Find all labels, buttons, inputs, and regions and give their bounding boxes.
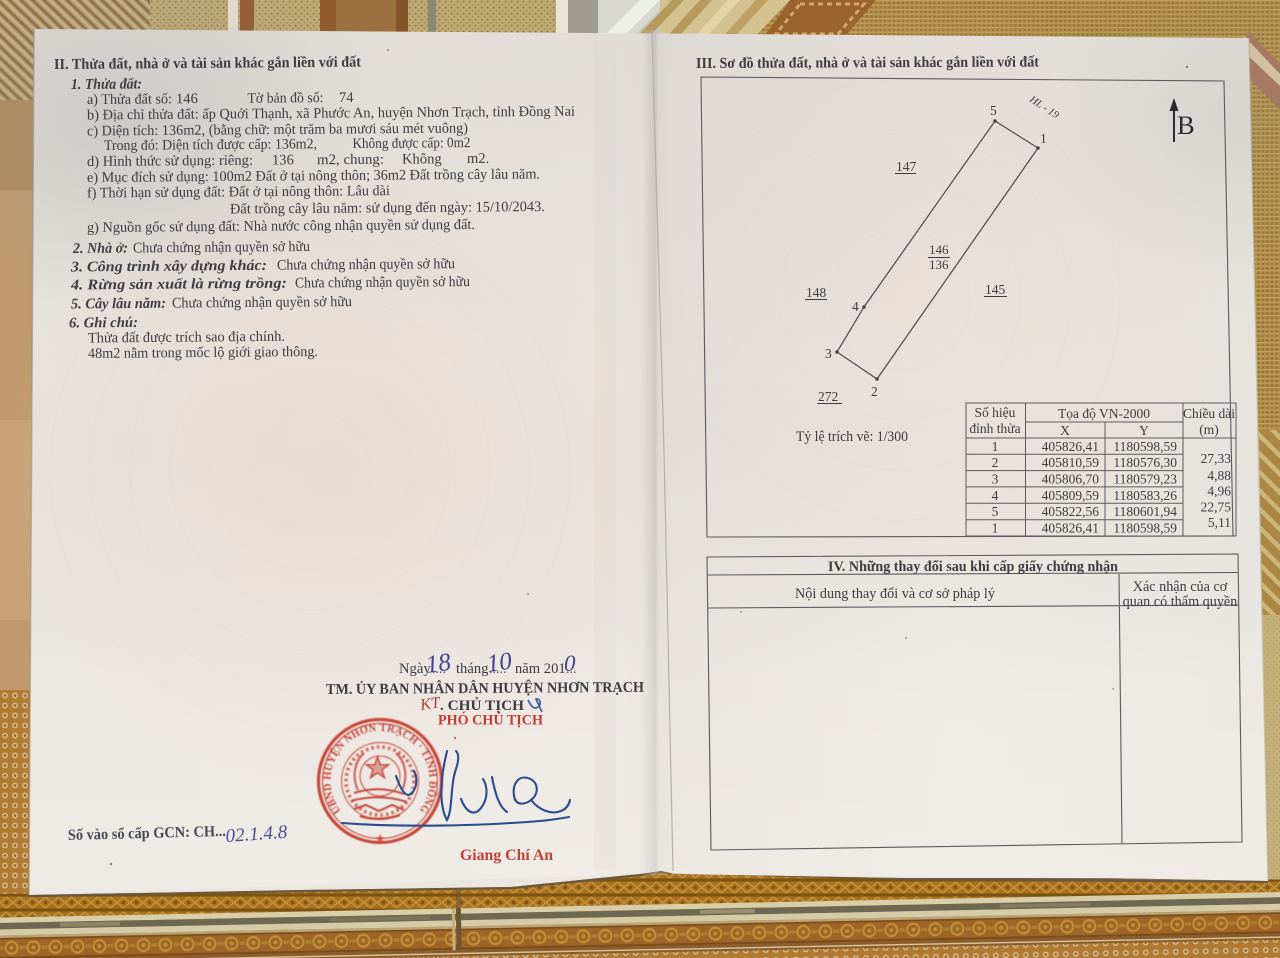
svg-text:18: 18 bbox=[424, 649, 453, 679]
svg-text:48m2 nằm trong mốc lộ giới gia: 48m2 nằm trong mốc lộ giới giao thông. bbox=[88, 344, 318, 362]
svg-text:27,33: 27,33 bbox=[1201, 451, 1232, 466]
svg-text:4: 4 bbox=[992, 488, 999, 503]
svg-text:2. Nhà ở:Chưa chứng nhận quyền: 2. Nhà ở:Chưa chứng nhận quyền sở hữu bbox=[72, 239, 311, 257]
svg-text:1180576,30: 1180576,30 bbox=[1113, 455, 1177, 470]
svg-text:405822,56: 405822,56 bbox=[1042, 504, 1100, 519]
svg-text:1180601,94: 1180601,94 bbox=[1113, 504, 1177, 519]
svg-text:405826,41: 405826,41 bbox=[1042, 521, 1099, 536]
svg-text:B: B bbox=[1177, 110, 1195, 140]
svg-text:5,11: 5,11 bbox=[1208, 515, 1231, 530]
svg-text:PHÓ CHỦ TỊCH: PHÓ CHỦ TỊCH bbox=[438, 712, 543, 729]
svg-text:4: 4 bbox=[852, 299, 859, 314]
svg-text:1: 1 bbox=[1040, 131, 1047, 146]
svg-text:g) Nguồn gốc sử dụng đất: Nhà: g) Nguồn gốc sử dụng đất: Nhà nước công … bbox=[87, 217, 475, 236]
svg-text:145: 145 bbox=[985, 282, 1006, 297]
svg-text:136: 136 bbox=[929, 257, 949, 272]
svg-text:TM. ỦY BAN NHÂN DÂN HUYỆN NHƠN: TM. ỦY BAN NHÂN DÂN HUYỆN NHƠN TRẠCH bbox=[326, 679, 644, 698]
svg-text:quan có thẩm quyền: quan có thẩm quyền bbox=[1123, 594, 1238, 610]
svg-text:KT: KT bbox=[418, 694, 442, 714]
svg-text:272: 272 bbox=[818, 389, 838, 404]
svg-text:Chiều dài: Chiều dài bbox=[1183, 406, 1235, 421]
svg-text:2: 2 bbox=[871, 384, 878, 399]
svg-text:1180598,59: 1180598,59 bbox=[1113, 521, 1177, 536]
svg-text:X: X bbox=[1060, 423, 1070, 438]
svg-text:148: 148 bbox=[806, 285, 827, 300]
svg-text:4,88: 4,88 bbox=[1207, 468, 1231, 483]
svg-text:tháng: tháng bbox=[456, 661, 489, 677]
svg-text:3: 3 bbox=[825, 346, 832, 361]
svg-text:147: 147 bbox=[896, 159, 917, 174]
svg-text:f) Thời hạn sử dụng đất: Đất ở: f) Thời hạn sử dụng đất: Đất ở tại nông … bbox=[87, 183, 390, 201]
svg-text:3: 3 bbox=[992, 472, 999, 487]
svg-text:5. Cây lâu năm:Chưa chứng nhận: 5. Cây lâu năm:Chưa chứng nhận quyền sở … bbox=[71, 294, 353, 312]
svg-text:1: 1 bbox=[992, 439, 999, 454]
svg-text:405826,41: 405826,41 bbox=[1042, 439, 1099, 454]
svg-text:1180579,23: 1180579,23 bbox=[1113, 472, 1177, 487]
svg-text:Tỷ lệ trích vẽ: 1/300: Tỷ lệ trích vẽ: 1/300 bbox=[796, 429, 908, 445]
svg-text:146: 146 bbox=[929, 242, 949, 257]
svg-text:★: ★ bbox=[375, 833, 385, 845]
svg-text:Số hiệu: Số hiệu bbox=[975, 405, 1016, 420]
svg-text:. CHỦ TỊCH: . CHỦ TỊCH bbox=[440, 697, 524, 714]
svg-text:02.1.4.8: 02.1.4.8 bbox=[225, 822, 289, 847]
svg-text:5: 5 bbox=[992, 504, 999, 519]
svg-text:(m): (m) bbox=[1199, 422, 1219, 437]
svg-text:3. Công trình xây dựng khác:Ch: 3. Công trình xây dựng khác:Chưa chứng n… bbox=[70, 256, 456, 275]
svg-text:Đất trồng cây lâu năm: sử dụng: Đất trồng cây lâu năm: sử dụng đến ngày:… bbox=[230, 199, 545, 217]
svg-text:22,75: 22,75 bbox=[1201, 500, 1232, 515]
svg-text:Y: Y bbox=[1139, 423, 1149, 438]
svg-text:IV. Những thay đổi sau khi cấp: IV. Những thay đổi sau khi cấp giấy chứn… bbox=[828, 559, 1119, 575]
svg-text:đỉnh thửa: đỉnh thửa bbox=[969, 421, 1020, 436]
svg-text:405809,59: 405809,59 bbox=[1042, 488, 1100, 503]
svg-text:1: 1 bbox=[992, 521, 999, 536]
svg-text:Tọa độ VN-2000: Tọa độ VN-2000 bbox=[1058, 406, 1150, 421]
svg-text:405810,59: 405810,59 bbox=[1042, 455, 1100, 470]
svg-text:10: 10 bbox=[485, 648, 514, 678]
svg-text:405806,70: 405806,70 bbox=[1042, 472, 1100, 487]
svg-text:1180598,59: 1180598,59 bbox=[1113, 439, 1177, 454]
svg-text:6. Ghi chú:: 6. Ghi chú: bbox=[69, 315, 138, 332]
svg-text:năm 201: năm 201 bbox=[515, 661, 566, 677]
svg-text:III. Sơ đồ thửa đất, nhà ở và: III. Sơ đồ thửa đất, nhà ở và tài sản kh… bbox=[696, 54, 1039, 72]
svg-text:II. Thửa đất, nhà ở và tài sản: II. Thửa đất, nhà ở và tài sản khác gắn … bbox=[54, 54, 361, 73]
svg-text:Xác nhận của cơ: Xác nhận của cơ bbox=[1133, 579, 1228, 595]
svg-text:5: 5 bbox=[990, 103, 997, 118]
svg-text:1. Thửa đất:: 1. Thửa đất: bbox=[71, 76, 142, 93]
svg-text:2: 2 bbox=[992, 455, 999, 470]
svg-text:Giang Chí An: Giang Chí An bbox=[460, 847, 553, 864]
svg-text:Nội dung thay đổi và cơ sở phá: Nội dung thay đổi và cơ sở pháp lý bbox=[795, 586, 996, 602]
svg-text:1180583,26: 1180583,26 bbox=[1113, 488, 1177, 503]
svg-text:0: 0 bbox=[564, 651, 576, 676]
svg-text:4,96: 4,96 bbox=[1207, 484, 1231, 499]
